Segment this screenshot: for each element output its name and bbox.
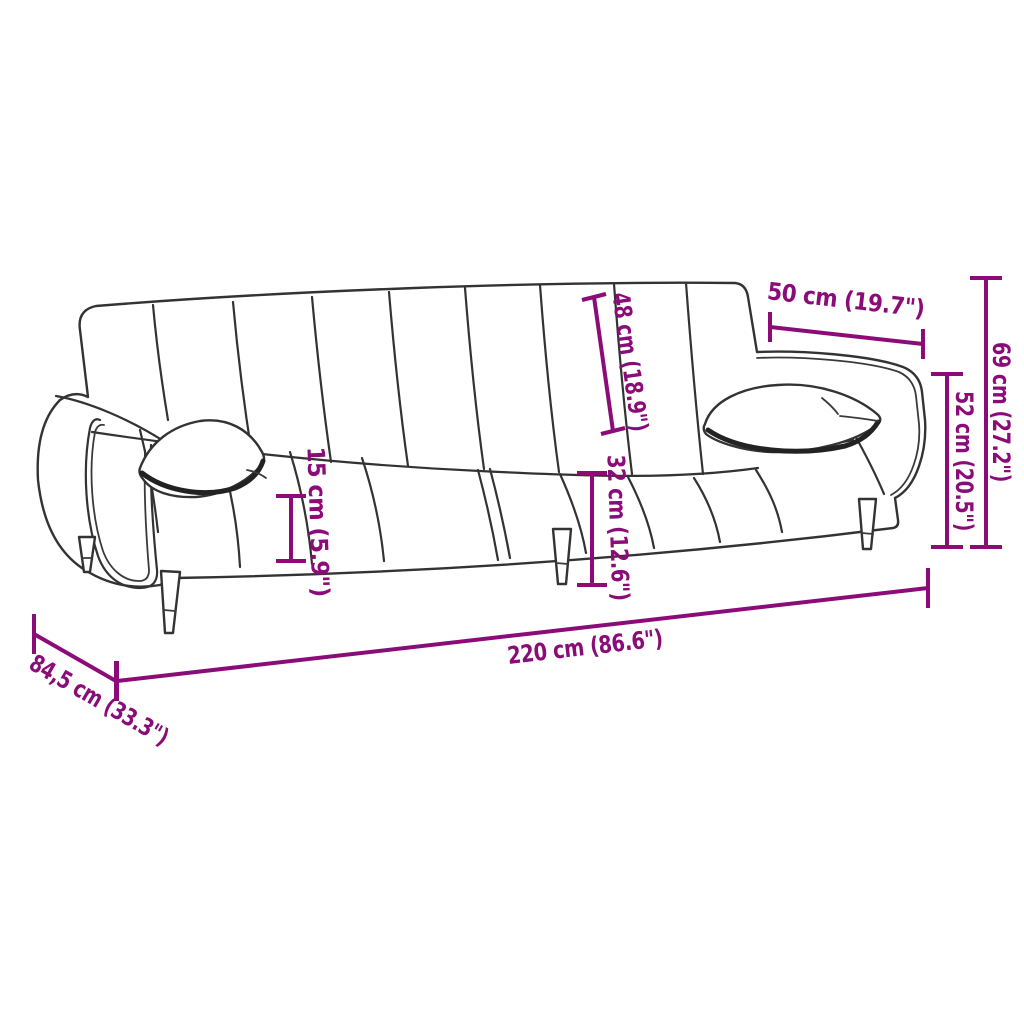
dimension-label: 50 cm (19.7") <box>766 277 926 323</box>
dimension-label: 32 cm (12.6") <box>601 454 634 601</box>
dimension-armrest-section-width: 50 cm (19.7") <box>766 277 926 359</box>
sofa-leg <box>161 571 180 633</box>
dimension-label: 84,5 cm (33.3") <box>24 649 173 751</box>
dimension-label: 15 cm (5.9") <box>301 446 334 597</box>
sofa-leg <box>553 529 571 584</box>
product-dimension-image: 48 cm (18.9") 50 cm (19.7") 69 cm (27.2"… <box>0 0 1024 1024</box>
sofa-illustration <box>38 283 926 633</box>
sofa-leg <box>859 499 876 549</box>
dimension-label: 220 cm (86.6") <box>506 624 664 670</box>
dimension-label: 69 cm (27.2") <box>987 342 1015 482</box>
dimension-line <box>770 327 923 344</box>
dimension-armrest-height: 52 cm (20.5") <box>931 374 978 547</box>
dimension-overall-depth: 84,5 cm (33.3") <box>24 614 173 751</box>
dimension-label: 52 cm (20.5") <box>950 391 978 531</box>
dimension-overall-width: 220 cm (86.6") <box>117 568 928 701</box>
